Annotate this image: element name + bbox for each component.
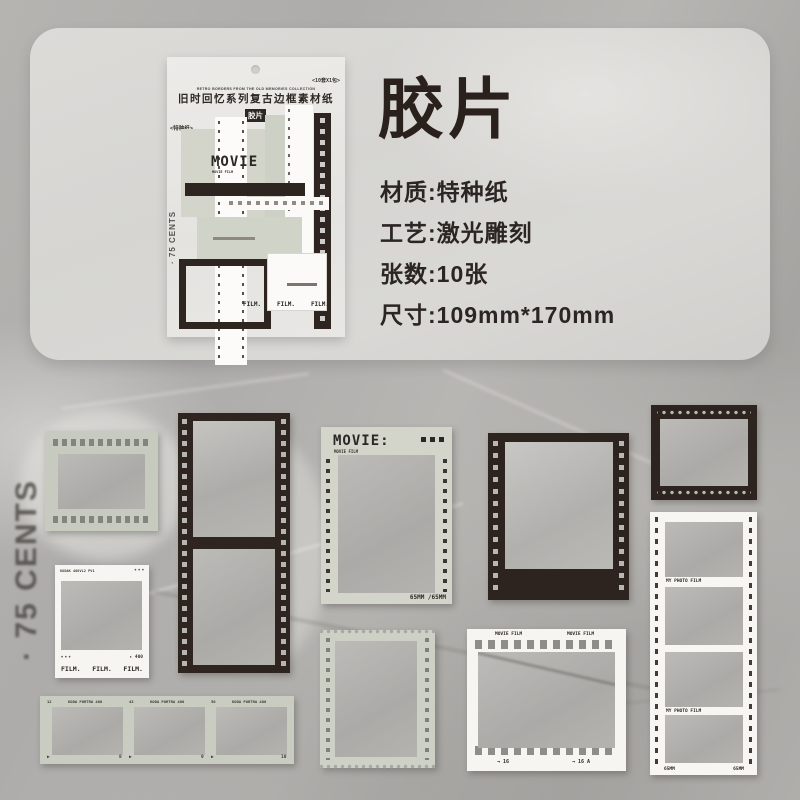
stamp-frame-sage <box>320 630 435 768</box>
spec-line-material: 材质:特种纸 <box>380 173 509 207</box>
sprocket-holes <box>53 516 150 523</box>
sprocket-holes <box>182 419 187 667</box>
stamp-perforation <box>320 764 435 769</box>
pack-count-note: <10套X1包> <box>312 79 340 84</box>
spec-line-size: 尺寸:109mm*170mm <box>380 296 615 330</box>
package-product-name: 旧时回忆系列复古边框素材纸 <box>178 94 334 105</box>
movie-frame-sub: MOVIE FILM <box>334 450 358 454</box>
info-panel: <10套X1包> RETRO BORDERS FROM THE OLD MEMO… <box>30 28 770 360</box>
movie-frame-size-note: 65MM /65MM <box>410 595 446 601</box>
package-english-line: RETRO BORDERS FROM THE OLD MEMORIES COLL… <box>197 88 316 92</box>
package-badge: 胶片 <box>245 109 266 122</box>
frame-window <box>665 715 743 763</box>
photo-strip-size-row: 65MM 65MM <box>664 767 744 772</box>
frame-window <box>338 455 435 593</box>
frame-window <box>216 707 287 755</box>
sprocket-holes <box>475 640 618 649</box>
film-word: FILM. <box>123 665 143 673</box>
collage-film-words: FILM. FILM. FILM. <box>243 301 329 308</box>
negative-index: 12 <box>47 700 52 704</box>
collage-dark-frame <box>179 259 271 329</box>
negative-index: 50 <box>211 700 216 704</box>
film-strip-dark <box>178 413 290 673</box>
sprocket-holes <box>619 441 624 592</box>
film-word: FILM. <box>311 301 329 308</box>
collage-micro-text-bar <box>213 237 255 240</box>
photo-strip-white: MY PHOTO FILM MY PHOTO FILM 65MM 65MM <box>650 512 757 775</box>
size-label: 65MM <box>664 767 675 772</box>
crease-line <box>478 652 615 695</box>
frame-window <box>660 419 748 486</box>
film-word: FILM. <box>61 665 81 673</box>
dotted-frame-dark <box>651 405 757 500</box>
spec-line-count: 张数:10张 <box>380 255 488 289</box>
polaroid-dark <box>488 433 629 600</box>
frame-window <box>134 707 205 755</box>
movie-frame-white: MOVIE FILM MOVIE FILM → 16 → 16 A <box>467 629 626 771</box>
film-frame-sage <box>45 431 158 531</box>
movie-frame-title: MOVIE: <box>333 434 390 448</box>
frame-window <box>193 421 275 537</box>
cents-watermark: · 75 CENTS <box>12 470 48 670</box>
negative-arrow: ▶ <box>211 756 214 761</box>
sprocket-holes <box>229 201 325 205</box>
spec-line-process: 工艺:激光雕刻 <box>380 214 533 248</box>
frame-window <box>58 454 145 509</box>
hang-hole <box>251 65 260 74</box>
film-word: FILM. <box>92 665 112 673</box>
frame-window <box>665 652 743 707</box>
sprocket-holes <box>281 419 286 667</box>
negative-strip-sage: 12 KODA PORTRA 400 ▶ 8 43 KODA PORTRA 40… <box>40 696 294 764</box>
polaroid-white: KODAK 400VL2 PV1 • • • • • • ▸ 400 FILM.… <box>55 565 149 678</box>
photo-strip-label: MY PHOTO FILM <box>666 580 701 585</box>
registration-squares <box>421 437 444 442</box>
frame-window <box>335 641 417 757</box>
frame-mark-right: → 16 A <box>572 760 590 765</box>
frame-mark-left: → 16 <box>497 760 509 765</box>
sprocket-holes <box>443 459 447 592</box>
movie-film-label-right: MOVIE FILM <box>567 633 594 638</box>
film-word: FILM. <box>243 301 261 308</box>
sprocket-holes <box>326 459 330 592</box>
sprocket-holes <box>655 517 658 770</box>
frame-window <box>665 587 743 645</box>
sprocket-holes <box>326 638 330 760</box>
frame-window <box>61 581 142 650</box>
negative-number: 8 <box>119 756 122 761</box>
frame-window <box>478 652 615 748</box>
polaroid-film-words: FILM. FILM. FILM. <box>61 665 143 673</box>
frame-window <box>193 549 275 665</box>
negative-brand: KODA PORTRA 400 <box>68 700 102 704</box>
polaroid-dots-right: • • • <box>134 568 144 574</box>
negative-number: 9 <box>201 756 204 761</box>
frame-window <box>505 442 613 569</box>
collage-micro-text-bar <box>287 283 317 286</box>
photo-strip-label: MY PHOTO FILM <box>666 710 701 715</box>
perforation-dots <box>657 489 751 496</box>
frame-window <box>52 707 123 755</box>
collage-movie-title: MOVIE <box>211 155 258 169</box>
sprocket-holes <box>493 441 498 592</box>
crease-line <box>61 373 309 410</box>
collage-dark-strip-horizontal <box>185 183 305 196</box>
package-cents-note: · 75 CENTS <box>169 184 177 264</box>
film-word: FILM. <box>277 301 295 308</box>
page-title: 胶片 <box>378 56 518 152</box>
sprocket-holes <box>749 517 752 770</box>
product-package: <10套X1包> RETRO BORDERS FROM THE OLD MEMO… <box>167 57 345 337</box>
negative-brand: KODA PORTRA 400 <box>150 700 184 704</box>
negative-number: 10 <box>281 756 286 761</box>
polaroid-counter: ▸ 400 <box>129 656 143 661</box>
frame-window <box>665 522 743 577</box>
negative-arrow: ▶ <box>129 756 132 761</box>
sprocket-holes <box>425 638 429 760</box>
movie-film-label-left: MOVIE FILM <box>495 633 522 638</box>
size-label: 65MM <box>733 767 744 772</box>
negative-index: 43 <box>129 700 134 704</box>
movie-frame-sage: MOVIE: MOVIE FILM 65MM /65MM <box>321 427 452 604</box>
polaroid-edge-code: KODAK 400VL2 PV1 <box>60 570 95 574</box>
package-badge-label: 胶片 <box>248 110 263 121</box>
negative-brand: KODA PORTRA 400 <box>232 700 266 704</box>
stamp-perforation <box>320 629 435 634</box>
negative-arrow: ▶ <box>47 756 50 761</box>
collage-movie-sub: MOVIE FILM <box>212 171 233 175</box>
sprocket-holes <box>53 439 150 446</box>
polaroid-dots-left: • • • <box>61 655 71 661</box>
collage-white-strip-horizontal <box>225 197 329 210</box>
perforation-dots <box>657 409 751 416</box>
